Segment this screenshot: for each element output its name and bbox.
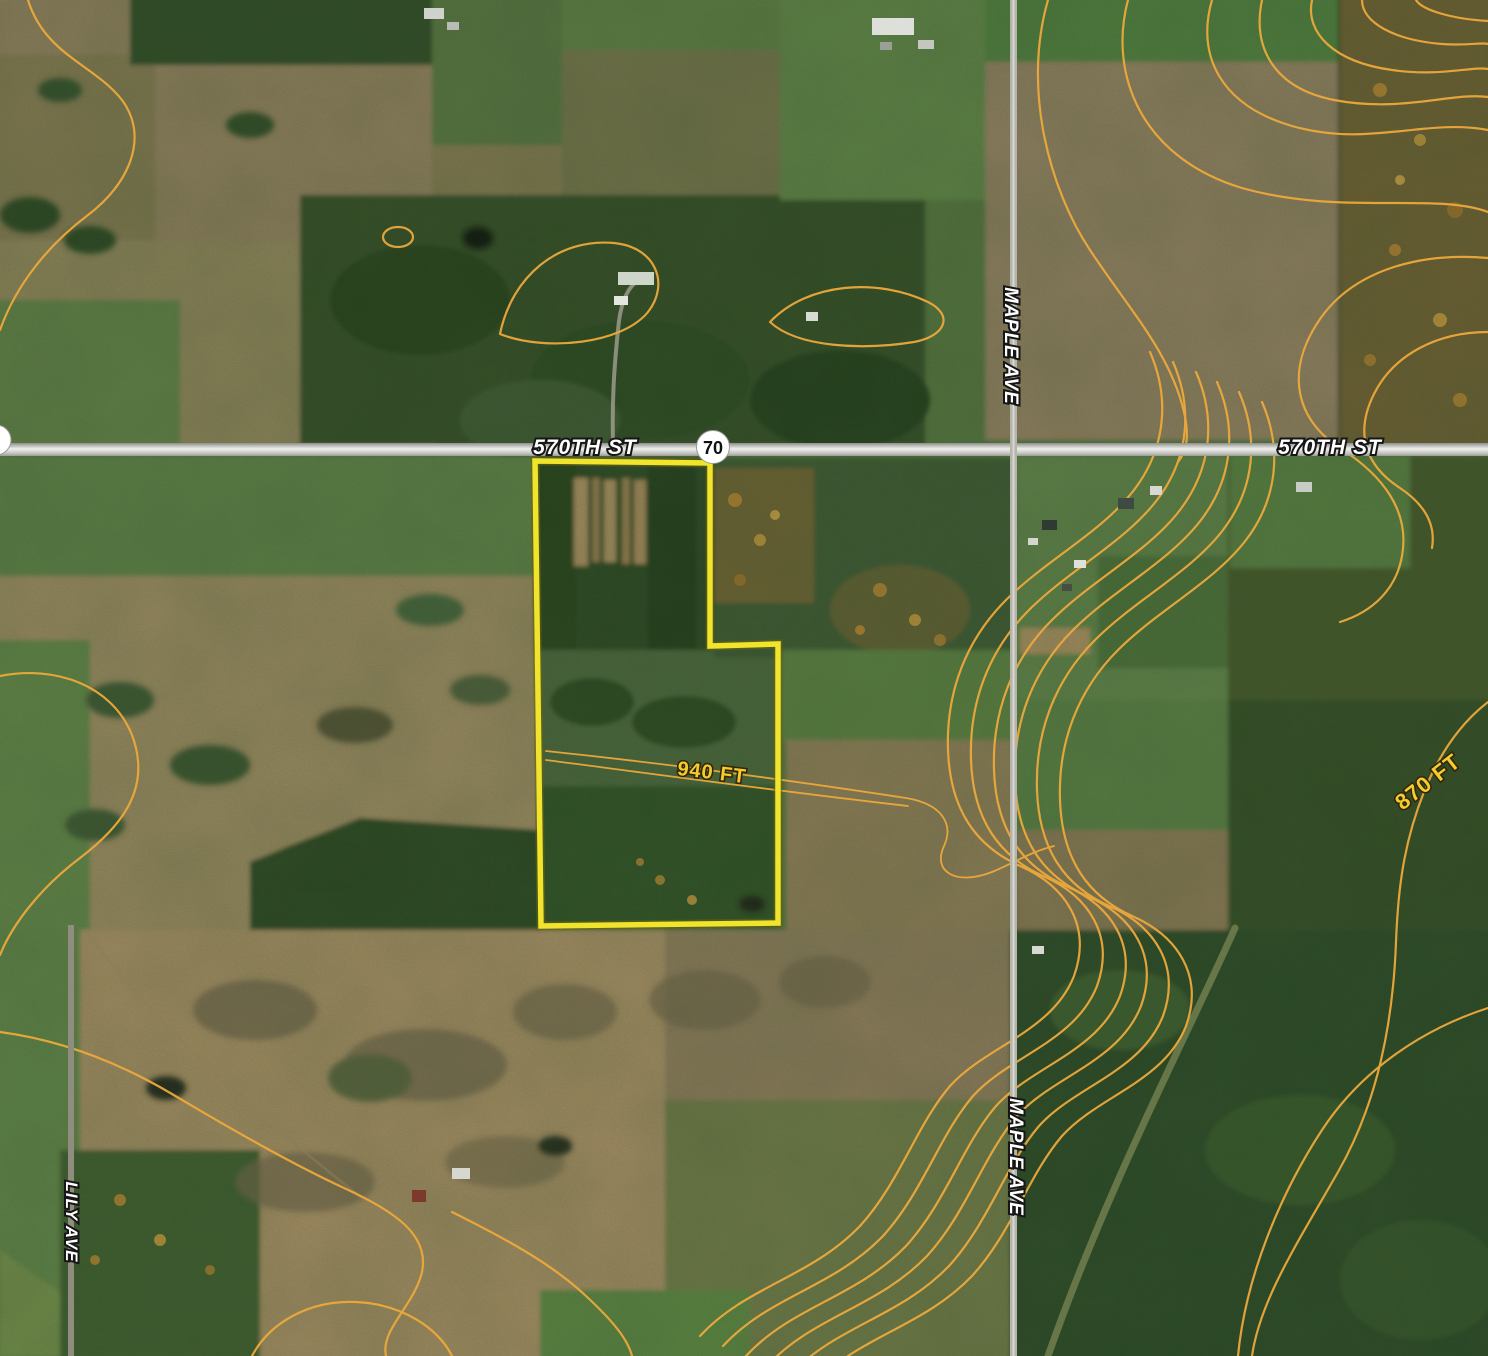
road-label-570th-left: 570TH ST (533, 436, 638, 459)
road-lily-ave (68, 925, 74, 1356)
road-label-maple-ave-top: MAPLE AVE (1000, 287, 1021, 405)
road-label-maple-ave-bottom: MAPLE AVE (1005, 1098, 1026, 1216)
highway-shield-70-number: 70 (703, 438, 723, 458)
road-label-570th-right: 570TH ST (1278, 436, 1383, 459)
terrain-speckle-texture (0, 0, 1488, 1356)
map-canvas[interactable]: 570TH ST 570TH ST MAPLE AVE MAPLE AVE LI… (0, 0, 1488, 1356)
road-570th-st (0, 443, 1488, 456)
map-viewport: 570TH ST 570TH ST MAPLE AVE MAPLE AVE LI… (0, 0, 1488, 1356)
road-label-lily-ave: LILY AVE (62, 1181, 81, 1262)
